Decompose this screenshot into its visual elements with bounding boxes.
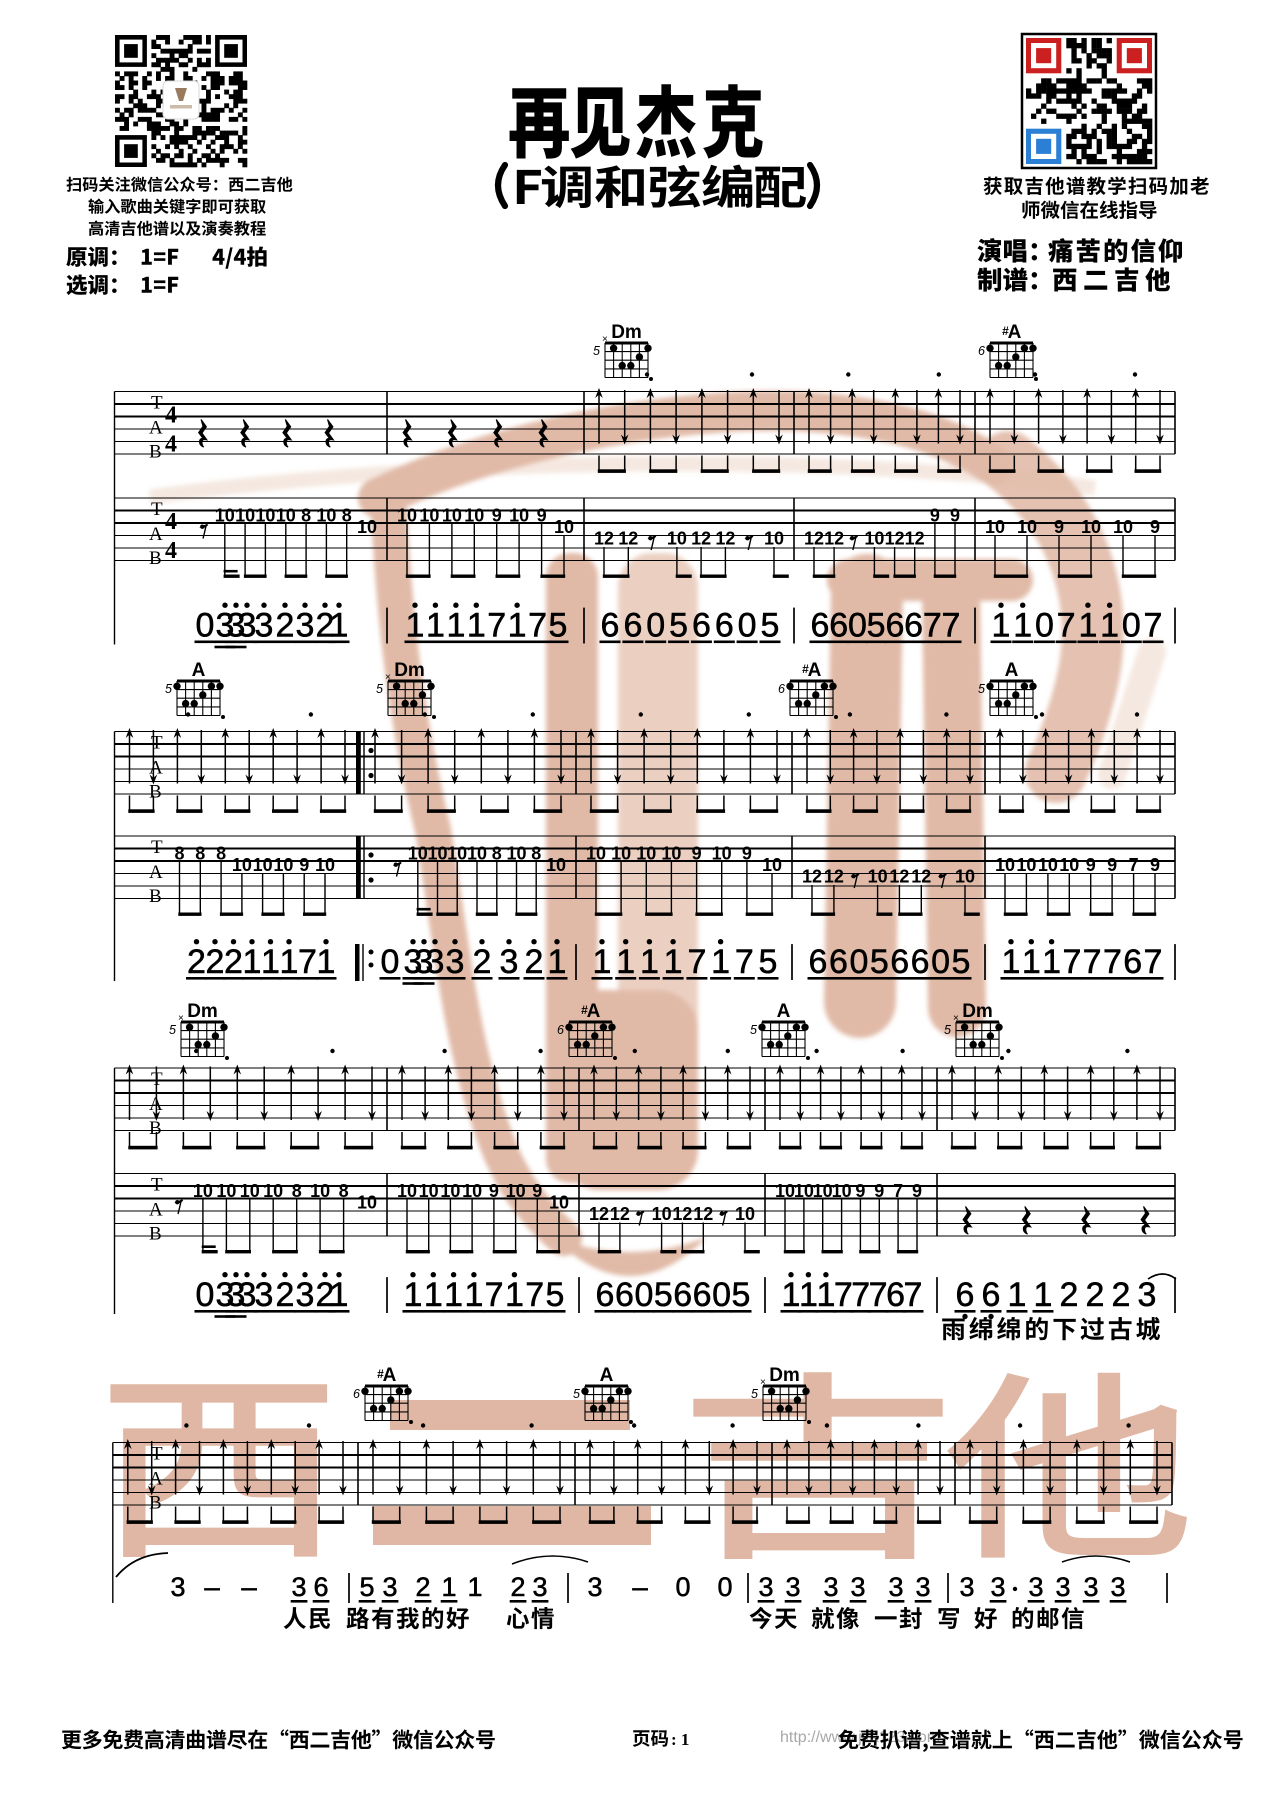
svg-text:A: A: [587, 1001, 601, 1022]
svg-text:5: 5: [761, 607, 780, 645]
svg-text:0: 0: [675, 1572, 690, 1602]
svg-text:9: 9: [299, 855, 309, 875]
svg-text:10: 10: [868, 867, 888, 887]
svg-text:5: 5: [751, 1387, 758, 1401]
svg-text:10: 10: [864, 529, 884, 549]
svg-text:2: 2: [1086, 1276, 1105, 1314]
svg-text:5: 5: [952, 943, 971, 981]
svg-text:4: 4: [165, 403, 177, 429]
svg-text:1: 1: [424, 1276, 443, 1314]
svg-text:10: 10: [232, 855, 252, 875]
svg-text:1: 1: [404, 1276, 423, 1314]
svg-text:9: 9: [855, 1181, 865, 1201]
svg-text:A: A: [808, 660, 822, 681]
svg-text:6: 6: [693, 1276, 712, 1314]
svg-text:9: 9: [930, 506, 940, 526]
svg-text:0: 0: [1035, 607, 1054, 645]
svg-text:10: 10: [995, 855, 1015, 875]
svg-text:A: A: [1008, 322, 1022, 343]
svg-text:3: 3: [296, 1276, 315, 1314]
svg-text:: 1: : 1: [671, 1730, 689, 1749]
svg-text:10: 10: [712, 844, 732, 864]
svg-text:3: 3: [758, 1572, 773, 1602]
svg-text:12: 12: [715, 529, 735, 549]
svg-text:10: 10: [813, 1181, 833, 1201]
svg-text:8: 8: [292, 1181, 302, 1201]
svg-text:A: A: [149, 524, 163, 545]
svg-text:10: 10: [193, 1181, 213, 1201]
svg-text:5: 5: [669, 607, 688, 645]
svg-text:0: 0: [646, 607, 665, 645]
svg-text:10: 10: [1081, 517, 1101, 537]
svg-text:7: 7: [1129, 855, 1139, 875]
svg-text:0: 0: [196, 1276, 215, 1314]
svg-text:8: 8: [174, 844, 184, 864]
svg-text:1: 1: [1002, 943, 1021, 981]
svg-text:5: 5: [546, 1276, 565, 1314]
svg-text:6: 6: [956, 1276, 975, 1314]
svg-text:1: 1: [330, 1276, 349, 1314]
svg-text:6: 6: [885, 607, 904, 645]
svg-text:0: 0: [381, 943, 400, 981]
svg-text:A: A: [777, 1001, 791, 1022]
svg-text:12: 12: [693, 1204, 713, 1224]
svg-text:3: 3: [785, 1572, 800, 1602]
svg-text:6: 6: [886, 1276, 905, 1314]
svg-text:9: 9: [1150, 517, 1160, 537]
svg-text:3: 3: [1055, 1572, 1070, 1602]
svg-text:12: 12: [618, 529, 638, 549]
svg-text:3: 3: [532, 1572, 547, 1602]
svg-text:3: 3: [915, 1572, 930, 1602]
svg-text:10: 10: [1016, 855, 1036, 875]
svg-text:1: 1: [548, 943, 567, 981]
svg-text:5: 5: [593, 344, 600, 358]
svg-text:10: 10: [419, 506, 439, 526]
svg-text:9: 9: [489, 1181, 499, 1201]
svg-text:6: 6: [890, 943, 909, 981]
svg-text:×: ×: [760, 1377, 766, 1388]
svg-text:1: 1: [317, 943, 336, 981]
svg-text:2: 2: [224, 943, 243, 981]
svg-text:10: 10: [273, 855, 293, 875]
svg-text:B: B: [149, 886, 162, 907]
svg-text:0: 0: [849, 943, 868, 981]
svg-text:3: 3: [850, 1572, 865, 1602]
svg-text:9: 9: [532, 1181, 542, 1201]
svg-text:5: 5: [165, 682, 172, 696]
svg-text:9: 9: [1107, 855, 1117, 875]
svg-text:×: ×: [178, 1013, 184, 1024]
svg-text:12: 12: [802, 867, 822, 887]
svg-text:A: A: [149, 758, 163, 779]
svg-text:T: T: [151, 1175, 163, 1196]
svg-text:1: 1: [593, 943, 612, 981]
svg-text:12: 12: [885, 529, 905, 549]
svg-text:7: 7: [528, 607, 547, 645]
svg-text:9: 9: [912, 1181, 922, 1201]
svg-text:10: 10: [735, 1204, 755, 1224]
svg-text:7: 7: [1144, 943, 1163, 981]
svg-text:1: 1: [508, 607, 527, 645]
svg-text:6: 6: [829, 943, 848, 981]
svg-text:10: 10: [216, 1181, 236, 1201]
svg-text:B: B: [149, 1118, 162, 1139]
svg-text:7: 7: [687, 943, 706, 981]
svg-text:10: 10: [253, 855, 273, 875]
svg-text:T: T: [151, 499, 163, 520]
svg-text:3: 3: [500, 943, 519, 981]
svg-text:10: 10: [955, 867, 975, 887]
svg-text:A: A: [383, 1365, 397, 1386]
svg-text:1: 1: [1100, 607, 1119, 645]
svg-text:10: 10: [509, 506, 529, 526]
svg-text:10: 10: [467, 844, 487, 864]
svg-text:12: 12: [691, 529, 711, 549]
svg-text:1: 1: [467, 1572, 482, 1602]
svg-text:7: 7: [834, 1276, 853, 1314]
svg-text:9: 9: [742, 844, 752, 864]
svg-text:12: 12: [911, 867, 931, 887]
svg-text:1: 1: [330, 607, 349, 645]
svg-text:5: 5: [549, 607, 568, 645]
svg-text:10: 10: [1059, 855, 1079, 875]
svg-text:7: 7: [735, 943, 754, 981]
svg-text:2: 2: [415, 1572, 430, 1602]
svg-text:6: 6: [911, 943, 930, 981]
svg-text:4: 4: [165, 432, 177, 458]
svg-text:10: 10: [652, 1204, 672, 1224]
svg-text:5: 5: [732, 1276, 751, 1314]
svg-text:10: 10: [832, 1181, 852, 1201]
svg-text:7: 7: [525, 1276, 544, 1314]
svg-text:7: 7: [1062, 943, 1081, 981]
svg-text:3: 3: [446, 943, 465, 981]
svg-text:3: 3: [426, 943, 445, 981]
svg-text:0: 0: [634, 1276, 653, 1314]
svg-text:10: 10: [240, 1181, 260, 1201]
svg-text:5: 5: [573, 1387, 580, 1401]
svg-text:3: 3: [587, 1572, 602, 1602]
svg-text:10: 10: [549, 1193, 569, 1213]
svg-text:1: 1: [1013, 607, 1032, 645]
svg-text:2: 2: [1060, 1276, 1079, 1314]
svg-text:10: 10: [464, 506, 484, 526]
svg-text:T: T: [151, 1444, 163, 1465]
svg-text:2: 2: [510, 1572, 525, 1602]
svg-text:1: 1: [441, 1572, 456, 1602]
svg-text:1: 1: [243, 943, 262, 981]
svg-text:5: 5: [867, 607, 886, 645]
svg-text:7: 7: [298, 943, 317, 981]
svg-text:10: 10: [447, 844, 467, 864]
svg-text:10: 10: [315, 855, 335, 875]
svg-text:6: 6: [692, 607, 711, 645]
svg-text:3: 3: [291, 1572, 306, 1602]
svg-text:12: 12: [905, 529, 925, 549]
svg-text:10: 10: [276, 506, 296, 526]
svg-text:9: 9: [492, 506, 502, 526]
svg-text:6: 6: [809, 943, 828, 981]
svg-text:Dm: Dm: [769, 1365, 800, 1386]
svg-text:Dm: Dm: [611, 322, 642, 343]
svg-text:7: 7: [923, 607, 942, 645]
svg-text:10: 10: [427, 844, 447, 864]
svg-text:8: 8: [195, 844, 205, 864]
svg-text:8: 8: [531, 844, 541, 864]
svg-text:B: B: [149, 1493, 162, 1514]
svg-text:10: 10: [442, 506, 462, 526]
svg-text:10: 10: [506, 844, 526, 864]
svg-text:7: 7: [1057, 607, 1076, 645]
svg-text:0: 0: [717, 1572, 732, 1602]
svg-text:6: 6: [313, 1572, 328, 1602]
svg-text:5: 5: [870, 943, 889, 981]
svg-text:6: 6: [778, 682, 785, 696]
svg-text:10: 10: [1038, 855, 1058, 875]
svg-text:A: A: [600, 1365, 614, 1386]
svg-text:B: B: [149, 1224, 162, 1245]
svg-text:7: 7: [893, 1181, 903, 1201]
svg-text:1: 1: [664, 943, 683, 981]
svg-text:7: 7: [1144, 607, 1163, 645]
svg-text:10: 10: [440, 1181, 460, 1201]
svg-text:10: 10: [546, 855, 566, 875]
svg-text:1: 1: [816, 1276, 835, 1314]
svg-text:10: 10: [1017, 517, 1037, 537]
svg-text:Dm: Dm: [187, 1001, 218, 1022]
svg-text:1: 1: [280, 943, 299, 981]
svg-text:1: 1: [1042, 943, 1061, 981]
svg-text:12: 12: [804, 529, 824, 549]
svg-text:10: 10: [397, 506, 417, 526]
svg-text:9: 9: [1086, 855, 1096, 875]
svg-text:12: 12: [824, 529, 844, 549]
svg-text:3: 3: [888, 1572, 903, 1602]
svg-text:9: 9: [950, 506, 960, 526]
svg-text:9: 9: [874, 1181, 884, 1201]
svg-text:B: B: [149, 442, 162, 463]
svg-text:1: 1: [446, 607, 465, 645]
svg-text:3: 3: [382, 1572, 397, 1602]
svg-text:T: T: [151, 393, 163, 414]
svg-text:9: 9: [1150, 855, 1160, 875]
svg-text:1: 1: [464, 1276, 483, 1314]
svg-text:10: 10: [667, 529, 687, 549]
svg-text:7: 7: [1083, 943, 1102, 981]
svg-text:12: 12: [594, 529, 614, 549]
svg-text:1: 1: [1078, 607, 1097, 645]
svg-text:10: 10: [235, 506, 255, 526]
svg-text:1: 1: [261, 943, 280, 981]
svg-text:6: 6: [623, 607, 642, 645]
svg-text:10: 10: [310, 1181, 330, 1201]
svg-text:A: A: [192, 660, 206, 681]
svg-text:5: 5: [654, 1276, 673, 1314]
svg-text:3: 3: [170, 1572, 185, 1602]
svg-text:7: 7: [869, 1276, 888, 1314]
svg-text:3: 3: [990, 1572, 1005, 1602]
svg-text:10: 10: [611, 844, 631, 864]
svg-text:6: 6: [601, 607, 620, 645]
svg-text:10: 10: [554, 517, 574, 537]
svg-text:7: 7: [904, 1276, 923, 1314]
svg-text:0: 0: [848, 607, 867, 645]
svg-text:1: 1: [799, 1276, 818, 1314]
svg-text:10: 10: [1113, 517, 1133, 537]
svg-text:3: 3: [1028, 1572, 1043, 1602]
svg-text:10: 10: [661, 844, 681, 864]
svg-text:2: 2: [276, 1276, 295, 1314]
svg-text:5: 5: [359, 1572, 374, 1602]
svg-text:12: 12: [889, 867, 909, 887]
svg-text:1: 1: [1034, 1276, 1053, 1314]
svg-text:1: 1: [1008, 1276, 1027, 1314]
svg-text:5: 5: [169, 1023, 176, 1037]
svg-text:6: 6: [596, 1276, 615, 1314]
svg-text:10: 10: [506, 1181, 526, 1201]
svg-text:10: 10: [263, 1181, 283, 1201]
svg-text:3: 3: [823, 1572, 838, 1602]
svg-text:B: B: [149, 548, 162, 569]
svg-text:3: 3: [1083, 1572, 1098, 1602]
svg-text:6: 6: [557, 1023, 564, 1037]
svg-text:2: 2: [1112, 1276, 1131, 1314]
svg-text:3: 3: [296, 607, 315, 645]
svg-text:5: 5: [978, 682, 985, 696]
svg-text:7: 7: [942, 607, 961, 645]
svg-text:9: 9: [537, 506, 547, 526]
svg-text:3: 3: [255, 607, 274, 645]
svg-text:8: 8: [492, 844, 502, 864]
svg-text:3: 3: [1138, 1276, 1157, 1314]
svg-text:10: 10: [636, 844, 656, 864]
svg-text:7: 7: [487, 607, 506, 645]
svg-text:6: 6: [811, 607, 830, 645]
svg-text:12: 12: [824, 867, 844, 887]
svg-text:10: 10: [408, 844, 428, 864]
svg-text:2: 2: [187, 943, 206, 981]
svg-text:10: 10: [775, 1181, 795, 1201]
svg-text:10: 10: [357, 517, 377, 537]
svg-text:2: 2: [276, 607, 295, 645]
svg-text:Dm: Dm: [394, 660, 425, 681]
svg-text:Dm: Dm: [962, 1001, 993, 1022]
svg-text:9: 9: [692, 844, 702, 864]
svg-text:0: 0: [1122, 607, 1141, 645]
svg-text:12: 12: [589, 1204, 609, 1224]
svg-text:0: 0: [712, 1276, 731, 1314]
svg-text:×: ×: [602, 334, 608, 345]
svg-text:2: 2: [206, 943, 225, 981]
svg-text:A: A: [149, 418, 163, 439]
svg-text:×: ×: [953, 1013, 959, 1024]
svg-text:10: 10: [764, 529, 784, 549]
svg-text:6: 6: [715, 607, 734, 645]
svg-text:6: 6: [615, 1276, 634, 1314]
svg-text:5: 5: [750, 1023, 757, 1037]
svg-text:A: A: [149, 1200, 163, 1221]
svg-text:10: 10: [985, 517, 1005, 537]
svg-text:A: A: [149, 862, 163, 883]
svg-text:5: 5: [944, 1023, 951, 1037]
svg-text:1: 1: [505, 1276, 524, 1314]
svg-text:×: ×: [385, 672, 391, 683]
svg-text:10: 10: [215, 506, 235, 526]
svg-text:8: 8: [342, 506, 352, 526]
svg-text:10: 10: [255, 506, 275, 526]
svg-text:7: 7: [1103, 943, 1122, 981]
svg-text:1: 1: [992, 607, 1011, 645]
svg-text:1: 1: [782, 1276, 801, 1314]
svg-text:3: 3: [255, 1276, 274, 1314]
svg-text:7: 7: [485, 1276, 504, 1314]
svg-text:3: 3: [959, 1572, 974, 1602]
svg-text:0: 0: [738, 607, 757, 645]
svg-text:10: 10: [586, 844, 606, 864]
svg-text:10: 10: [357, 1193, 377, 1213]
svg-text:10: 10: [419, 1181, 439, 1201]
svg-text:1: 1: [616, 943, 635, 981]
svg-text:9: 9: [1054, 517, 1064, 537]
svg-text:5: 5: [376, 682, 383, 696]
svg-text:1: 1: [426, 607, 445, 645]
svg-text:1: 1: [406, 607, 425, 645]
svg-text:0: 0: [931, 943, 950, 981]
svg-text:T: T: [151, 837, 163, 858]
svg-text:A: A: [1005, 660, 1019, 681]
svg-text:7: 7: [851, 1276, 870, 1314]
svg-text:3: 3: [1110, 1572, 1125, 1602]
svg-text:1: 1: [444, 1276, 463, 1314]
svg-text:6: 6: [673, 1276, 692, 1314]
svg-text:10: 10: [316, 506, 336, 526]
svg-text:6: 6: [829, 607, 848, 645]
svg-text:4: 4: [165, 509, 177, 535]
svg-text:8: 8: [301, 506, 311, 526]
svg-text:10: 10: [462, 1181, 482, 1201]
svg-text:6: 6: [982, 1276, 1001, 1314]
svg-text:6: 6: [353, 1387, 360, 1401]
svg-text:1: 1: [467, 607, 486, 645]
svg-text:4: 4: [165, 538, 177, 564]
svg-text:8: 8: [216, 844, 226, 864]
svg-text:0: 0: [196, 607, 215, 645]
svg-text:1: 1: [1022, 943, 1041, 981]
svg-text:1: 1: [711, 943, 730, 981]
svg-text:12: 12: [672, 1204, 692, 1224]
svg-text:6: 6: [1123, 943, 1142, 981]
svg-text:6: 6: [978, 344, 985, 358]
svg-text:10: 10: [794, 1181, 814, 1201]
svg-text:10: 10: [397, 1181, 417, 1201]
svg-text:5: 5: [759, 943, 778, 981]
svg-text:B: B: [149, 782, 162, 803]
svg-text:2: 2: [525, 943, 544, 981]
svg-text:2: 2: [473, 943, 492, 981]
svg-text:10: 10: [762, 855, 782, 875]
svg-text:12: 12: [610, 1204, 630, 1224]
svg-text:1: 1: [640, 943, 659, 981]
svg-text:6: 6: [904, 607, 923, 645]
svg-text:8: 8: [339, 1181, 349, 1201]
